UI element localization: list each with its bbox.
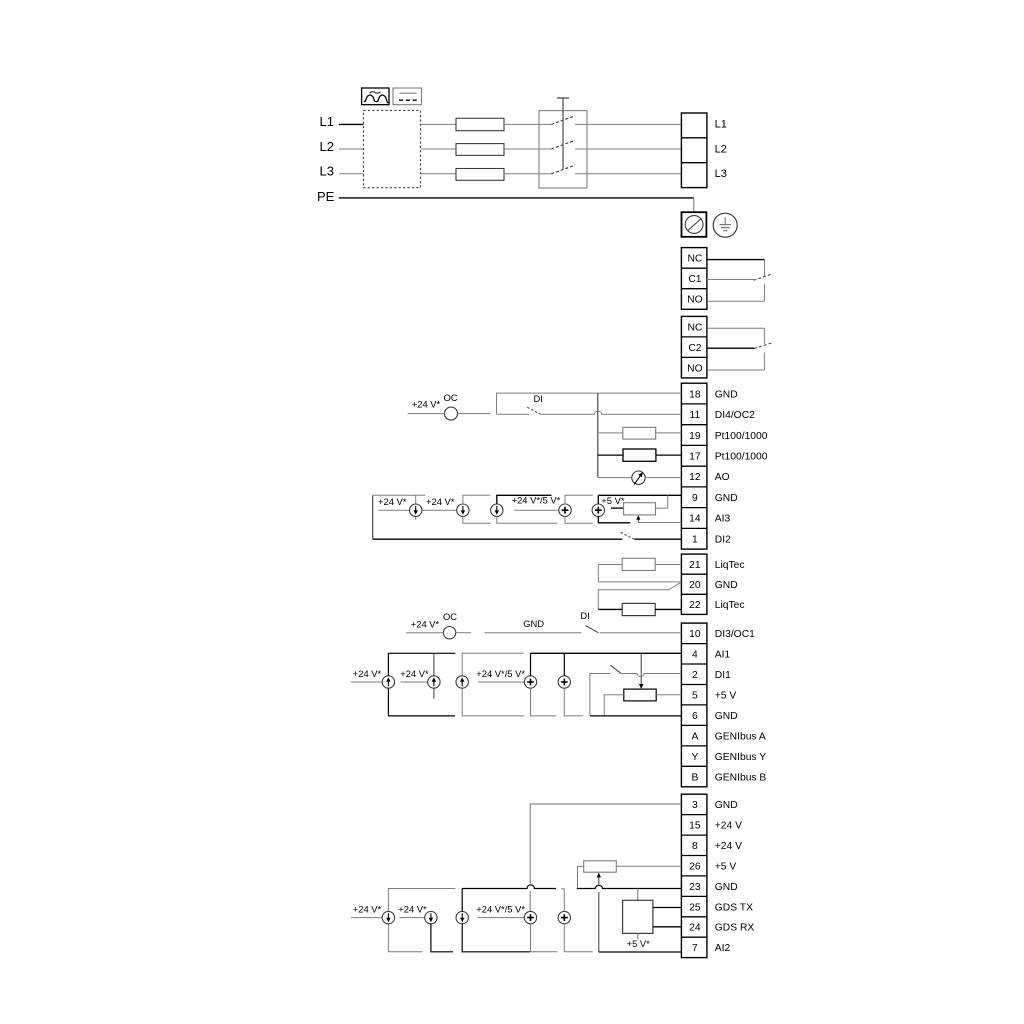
svg-text:+24 V*/5 V*: +24 V*/5 V*	[476, 904, 525, 915]
svg-text:AO: AO	[715, 472, 730, 483]
svg-text:DI2: DI2	[715, 535, 731, 546]
svg-text:OC: OC	[443, 611, 457, 622]
svg-text:+24 V*: +24 V*	[400, 668, 429, 679]
svg-text:C2: C2	[688, 343, 701, 354]
svg-text:AI3: AI3	[715, 514, 731, 525]
svg-text:DI4/OC2: DI4/OC2	[715, 410, 755, 421]
svg-text:+5 V*: +5 V*	[627, 938, 651, 949]
svg-text:10: 10	[689, 629, 701, 640]
svg-text:LiqTec: LiqTec	[715, 560, 745, 571]
svg-text:+24 V: +24 V	[715, 841, 742, 852]
svg-text:GDS RX: GDS RX	[715, 923, 755, 934]
svg-text:+24 V*/5 V*: +24 V*/5 V*	[512, 495, 561, 506]
svg-text:+24 V*: +24 V*	[378, 496, 407, 507]
svg-text:GENIbus Y: GENIbus Y	[715, 752, 766, 763]
svg-text:21: 21	[689, 560, 701, 571]
svg-text:NO: NO	[687, 295, 702, 306]
svg-text:GENIbus A: GENIbus A	[715, 731, 766, 742]
svg-text:+24 V*: +24 V*	[411, 619, 440, 630]
svg-text:A: A	[691, 731, 698, 742]
svg-text:PE: PE	[317, 189, 335, 204]
svg-text:24: 24	[689, 923, 701, 934]
svg-text:GENIbus B: GENIbus B	[715, 772, 767, 783]
svg-text:+24 V*: +24 V*	[398, 904, 427, 915]
svg-text:GND: GND	[523, 618, 544, 629]
svg-text:DI3/OC1: DI3/OC1	[715, 629, 755, 640]
svg-text:12: 12	[689, 472, 701, 483]
svg-text:11: 11	[690, 410, 701, 421]
svg-text:GND: GND	[715, 580, 738, 591]
svg-text:GDS TX: GDS TX	[715, 902, 753, 913]
svg-text:GND: GND	[715, 711, 738, 722]
svg-text:17: 17	[689, 452, 701, 463]
svg-text:C1: C1	[688, 274, 701, 285]
svg-text:20: 20	[689, 580, 701, 591]
svg-text:L2: L2	[320, 139, 334, 154]
svg-text:DI1: DI1	[715, 670, 731, 681]
svg-text:3: 3	[692, 800, 698, 811]
svg-text:+24 V: +24 V	[715, 821, 742, 832]
svg-text:DI: DI	[534, 393, 543, 404]
svg-text:25: 25	[689, 902, 701, 913]
svg-text:15: 15	[689, 821, 701, 832]
svg-text:+24 V*/5 V*: +24 V*/5 V*	[476, 668, 525, 679]
svg-text:Pt100/1000: Pt100/1000	[715, 452, 768, 463]
svg-text:L3: L3	[320, 164, 334, 179]
svg-text:9: 9	[692, 493, 698, 504]
svg-text:Y: Y	[691, 752, 698, 763]
svg-text:18: 18	[689, 389, 701, 400]
svg-text:5: 5	[692, 690, 698, 701]
svg-text:GND: GND	[715, 882, 738, 893]
svg-text:DI: DI	[580, 610, 589, 621]
svg-text:B: B	[691, 772, 698, 783]
svg-text:6: 6	[692, 711, 698, 722]
svg-text:+5 V: +5 V	[715, 861, 737, 872]
svg-text:AI1: AI1	[715, 650, 731, 661]
svg-text:+5 V: +5 V	[715, 690, 737, 701]
svg-text:26: 26	[689, 861, 701, 872]
svg-text:AI2: AI2	[715, 943, 731, 954]
svg-text:+24 V*: +24 V*	[412, 399, 441, 410]
svg-text:23: 23	[689, 882, 701, 893]
svg-text:1: 1	[692, 535, 698, 546]
svg-text:NO: NO	[687, 363, 702, 374]
svg-text:L1: L1	[320, 114, 334, 129]
svg-text:4: 4	[692, 650, 698, 661]
svg-text:19: 19	[689, 431, 701, 442]
svg-text:2: 2	[692, 670, 698, 681]
svg-text:NC: NC	[687, 254, 702, 265]
svg-text:GND: GND	[715, 493, 738, 504]
svg-text:L2: L2	[715, 143, 727, 155]
svg-text:OC: OC	[444, 392, 458, 403]
svg-text:GND: GND	[715, 800, 738, 811]
svg-text:Pt100/1000: Pt100/1000	[715, 431, 768, 442]
svg-text:7: 7	[692, 943, 698, 954]
svg-text:22: 22	[689, 600, 701, 611]
svg-text:+24 V*: +24 V*	[353, 904, 382, 915]
svg-text:+24 V*: +24 V*	[426, 496, 455, 507]
svg-text:L1: L1	[715, 119, 727, 131]
svg-text:+24 V*: +24 V*	[353, 668, 382, 679]
svg-text:14: 14	[689, 514, 701, 525]
svg-text:LiqTec: LiqTec	[715, 600, 745, 611]
svg-text:8: 8	[692, 841, 698, 852]
svg-text:NC: NC	[687, 322, 702, 333]
svg-text:L3: L3	[715, 168, 727, 180]
svg-text:GND: GND	[715, 389, 738, 400]
svg-text:+5 V*: +5 V*	[601, 495, 625, 506]
